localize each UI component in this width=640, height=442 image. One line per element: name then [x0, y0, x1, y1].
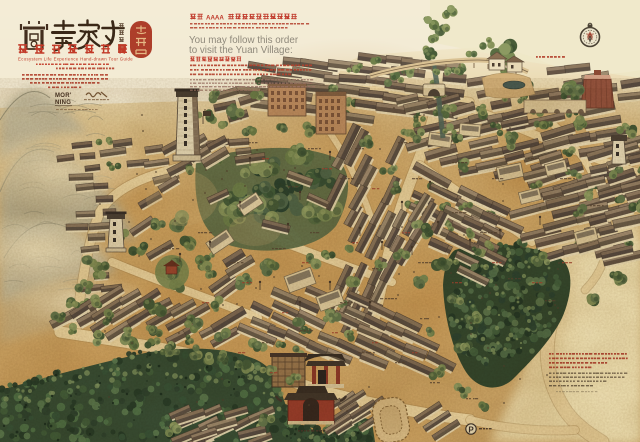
svg-text:AAAA: AAAA [206, 14, 224, 21]
svg-text:Ecosystem Life Experience Hand: Ecosystem Life Experience Hand-drawn Tou… [18, 57, 133, 62]
svg-text:to visit the Yuan Village:: to visit the Yuan Village: [189, 45, 293, 56]
